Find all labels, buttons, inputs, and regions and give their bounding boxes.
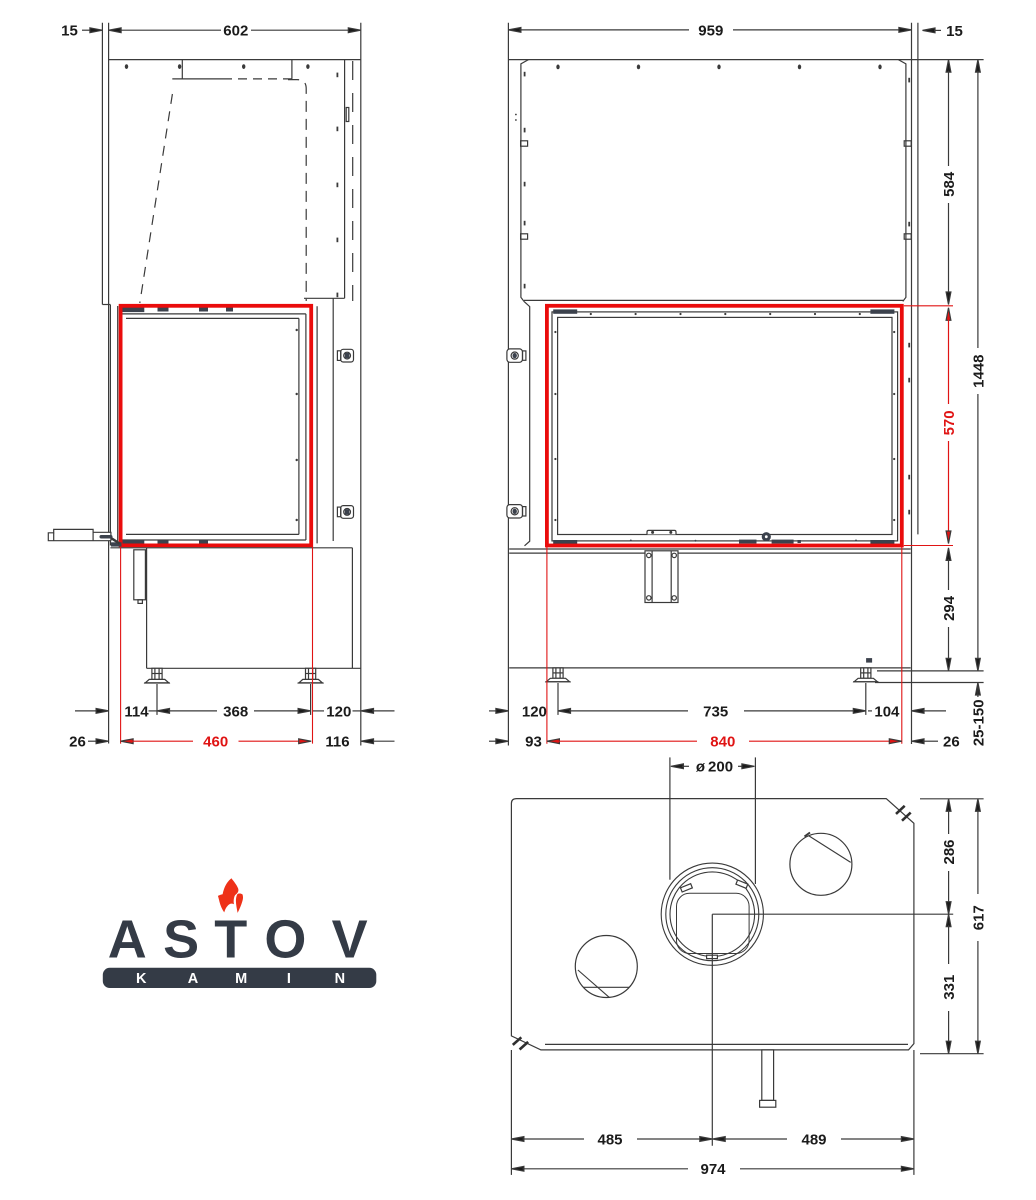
svg-text:O: O [264,910,306,970]
svg-text:331: 331 [941,975,958,1000]
svg-text:I: I [287,971,291,987]
svg-text:A: A [108,910,147,970]
svg-text:104: 104 [874,703,900,720]
svg-text:26: 26 [69,734,86,751]
svg-text:840: 840 [710,734,735,751]
svg-text:116: 116 [325,734,349,751]
svg-text:120: 120 [326,703,351,720]
svg-text:V: V [332,910,368,970]
svg-text:S: S [163,910,199,970]
svg-text:ø 200: ø 200 [696,759,733,776]
svg-text:114: 114 [124,703,149,720]
svg-text:93: 93 [525,734,542,751]
svg-text:26: 26 [943,734,960,751]
svg-text:368: 368 [223,703,248,720]
svg-text:974: 974 [700,1161,726,1178]
svg-text:K: K [136,971,147,987]
svg-text:602: 602 [223,23,248,40]
svg-text:489: 489 [801,1131,826,1148]
svg-text:A: A [188,971,199,987]
svg-text:M: M [235,971,247,987]
svg-text:485: 485 [597,1131,622,1148]
svg-text:460: 460 [203,734,228,751]
svg-text:570: 570 [941,410,958,435]
svg-text:25-150: 25-150 [970,699,987,746]
svg-text:T: T [214,910,247,970]
svg-text:15: 15 [61,23,78,40]
svg-text:N: N [335,971,345,987]
svg-text:959: 959 [698,22,723,39]
svg-text:294: 294 [941,595,958,621]
svg-text:584: 584 [941,171,958,197]
svg-text:286: 286 [941,839,958,864]
svg-text:120: 120 [522,703,547,720]
svg-text:735: 735 [703,703,728,720]
svg-text:1448: 1448 [970,355,987,388]
svg-text:15: 15 [946,23,963,40]
svg-text:617: 617 [970,905,987,930]
